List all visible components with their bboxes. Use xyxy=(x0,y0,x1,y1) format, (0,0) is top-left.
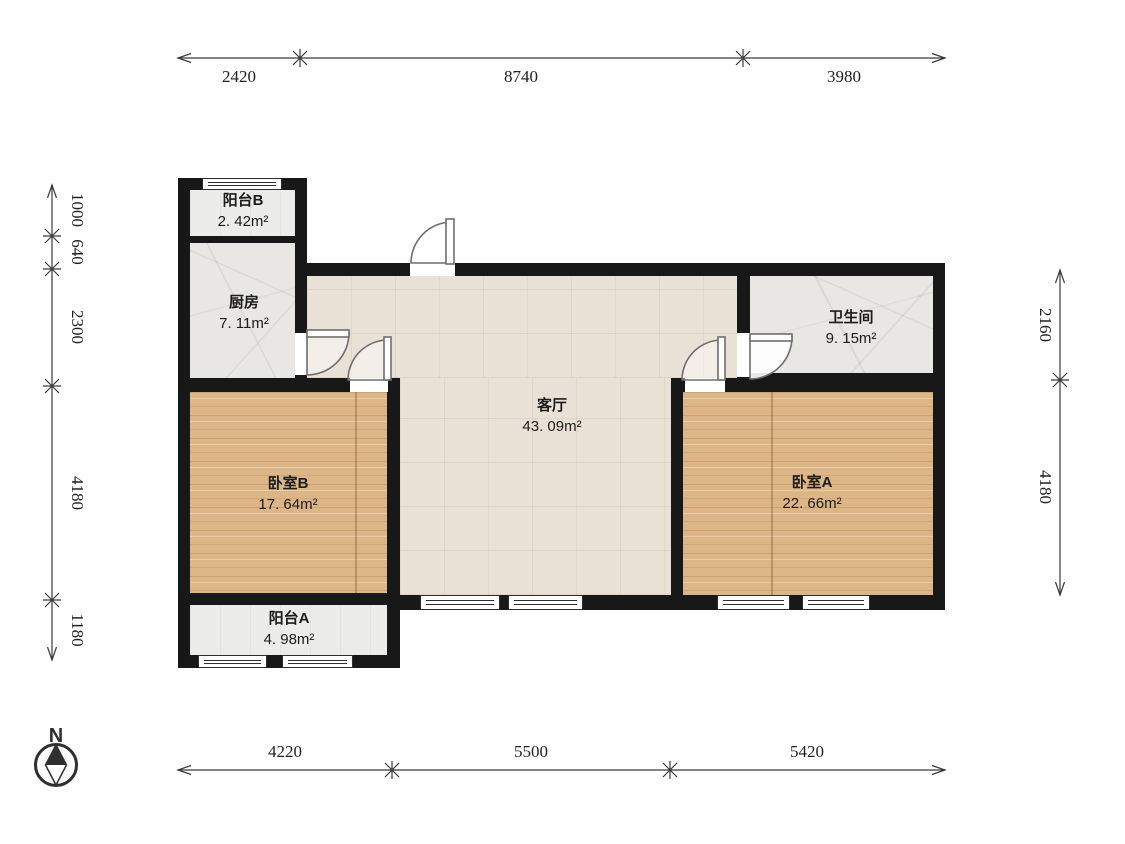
room-label-balcony-a: 阳台A 4. 98m² xyxy=(264,608,315,650)
door-entrance xyxy=(411,219,454,264)
dimension-bottom xyxy=(178,761,945,779)
room-area: 17. 64m² xyxy=(258,494,317,515)
room-name: 客厅 xyxy=(522,395,581,416)
dim-label-top-0: 2420 xyxy=(222,67,256,86)
floor-plan: 2420 8740 3980 4220 5500 5420 1000 640 2… xyxy=(0,0,1125,844)
room-name: 厨房 xyxy=(219,292,269,313)
room-name: 卧室A xyxy=(782,472,841,493)
door-leaf-kitchen xyxy=(307,330,349,337)
dim-label-bottom-0: 4220 xyxy=(268,742,302,761)
dim-label-top-2: 3980 xyxy=(827,67,861,86)
dim-label-top-1: 8740 xyxy=(504,67,538,86)
room-label-balcony-b: 阳台B 2. 42m² xyxy=(218,190,269,232)
room-label-kitchen: 厨房 7. 11m² xyxy=(219,292,269,334)
room-area: 22. 66m² xyxy=(782,493,841,514)
room-area: 9. 15m² xyxy=(826,328,877,349)
dim-label-right-0: 2160 xyxy=(1036,308,1055,342)
door-kitchen xyxy=(307,330,349,375)
compass-needle-north xyxy=(46,745,67,765)
dim-label-bottom-2: 5420 xyxy=(790,742,824,761)
door-leaf-bathroom xyxy=(750,334,792,341)
room-area: 2. 42m² xyxy=(218,211,269,232)
door-bedroom-b xyxy=(348,337,391,380)
dim-label-left-3: 4180 xyxy=(68,476,87,510)
compass: N xyxy=(36,725,77,786)
room-label-bedroom-b: 卧室B 17. 64m² xyxy=(258,473,317,515)
door-arc-bathroom xyxy=(750,337,792,379)
room-label-bathroom: 卫生间 9. 15m² xyxy=(826,307,877,349)
door-arc-kitchen xyxy=(307,333,349,375)
door-arc-bedroom-a xyxy=(682,340,722,380)
room-area: 7. 11m² xyxy=(219,313,269,334)
room-name: 阳台B xyxy=(218,190,269,211)
room-area: 43. 09m² xyxy=(522,416,581,437)
door-leaf-bedroom-b xyxy=(384,337,391,380)
door-bathroom xyxy=(750,334,792,379)
dim-label-left-0: 1000 xyxy=(68,193,87,227)
dimension-left xyxy=(43,185,61,660)
dim-label-left-4: 1180 xyxy=(68,613,87,646)
door-arc-bedroom-b xyxy=(348,340,388,380)
dimension-top xyxy=(178,49,945,67)
room-name: 卫生间 xyxy=(826,307,877,328)
room-name: 卧室B xyxy=(258,473,317,494)
dim-label-bottom-1: 5500 xyxy=(514,742,548,761)
room-label-bedroom-a: 卧室A 22. 66m² xyxy=(782,472,841,514)
door-leaf-bedroom-a xyxy=(718,337,725,380)
room-area: 4. 98m² xyxy=(264,629,315,650)
door-bedroom-a xyxy=(682,337,725,380)
dim-label-left-2: 2300 xyxy=(68,310,87,344)
dim-label-right-1: 4180 xyxy=(1036,470,1055,504)
door-leaf-entrance xyxy=(446,219,454,264)
room-label-living-room: 客厅 43. 09m² xyxy=(522,395,581,437)
room-name: 阳台A xyxy=(264,608,315,629)
dim-label-left-1: 640 xyxy=(68,239,87,265)
